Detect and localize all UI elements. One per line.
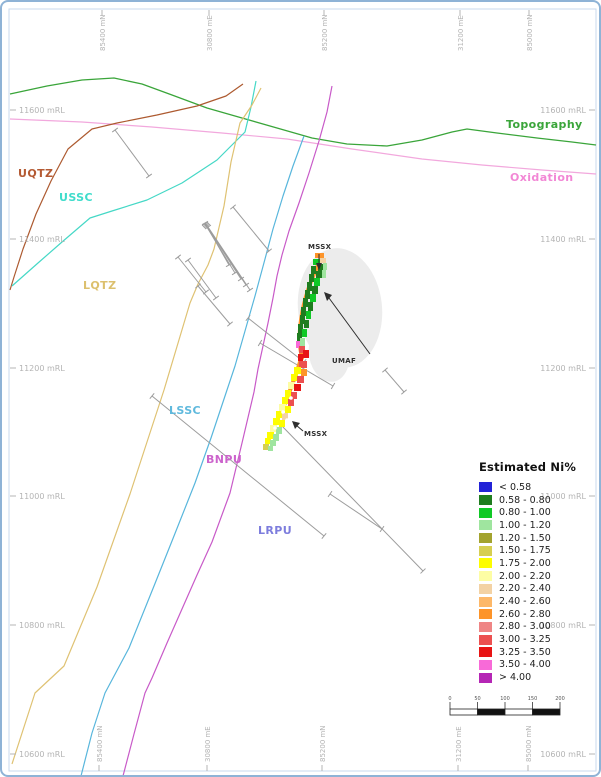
zone-label-bnpu: BNPU [206,453,242,466]
block-model-cell [312,286,318,294]
legend-label: 2.40 - 2.60 [499,596,551,607]
legend-row: 3.50 - 4.00 [479,659,576,672]
block-model-cell [306,311,311,319]
legend-label: 3.50 - 4.00 [499,659,551,670]
block-model-cell [294,367,301,374]
zone-label-uqtz: UQTZ [18,167,53,180]
legend-swatch [479,647,492,657]
block-model-cell [279,404,286,411]
legend-swatch [479,571,492,581]
pierce-point [273,426,277,430]
legend-row: 3.00 - 3.25 [479,633,576,646]
zone-label-lssc: LSSC [169,404,201,417]
legend-row: 0.80 - 1.00 [479,506,576,519]
legend-swatch [479,533,492,543]
drillhole-end-tick [247,288,253,292]
top-axis-label: 85200 mN [321,14,329,51]
legend-label: 1.20 - 1.50 [499,533,551,544]
drillhole-collar-tick [112,128,118,132]
scale-bar-tick-label: 100 [500,696,510,702]
legend-label: 0.58 - 0.80 [499,495,551,506]
legend-row: 2.60 - 2.80 [479,608,576,621]
block-model-cell [316,271,322,278]
legend-row: 1.00 - 1.20 [479,519,576,532]
bottom-axis-label: 85000 mN [525,725,533,762]
legend-row: 1.50 - 1.75 [479,544,576,557]
left-axis-label: 11600 mRL [19,106,65,115]
drillhole-trace [188,260,216,298]
legend-row: 1.75 - 2.00 [479,557,576,570]
block-model-cell [291,374,298,381]
zone-label-lrpu: LRPU [258,524,292,537]
drillhole-trace [152,396,324,536]
block-model-cell [285,406,291,413]
zone-label-ussc: USSC [59,191,93,204]
drillhole-collar-tick [328,491,332,497]
drillhole-trace [385,370,404,392]
drillhole-collar-tick [258,340,262,346]
drillhole-collar-tick [175,255,180,259]
legend-label: 0.80 - 1.00 [499,507,551,518]
block-model-cell [276,427,282,434]
legend-swatch [479,635,492,645]
drillhole-trace [233,207,269,251]
bottom-axis-label: 31200 mE [455,726,463,762]
block-model-cell [305,290,310,299]
block-model-cell [299,361,307,368]
drillhole-end-tick [146,174,152,178]
legend-swatch [479,546,492,556]
left-axis-label: 10600 mRL [19,750,65,759]
bottom-axis-label: 85200 mN [319,725,327,762]
legend-swatch [479,622,492,632]
legend-row: 2.20 - 2.40 [479,583,576,596]
zone-label-oxidation: Oxidation [510,171,574,184]
legend-row: < 0.58 [479,481,576,494]
cross-section-figure: 85400 mN30800 mE85200 mN31200 mE85000 mN… [0,0,601,777]
right-axis-label: 11400 mRL [540,235,586,244]
drillhole-collar-tick [185,258,191,262]
zone-label-topography: Topography [506,118,583,131]
drillhole-end-tick [331,383,335,389]
drillhole-trace [198,286,230,324]
pierce-point [281,410,285,414]
legend-swatch [479,660,492,670]
legend-swatch [479,508,492,518]
left-axis-label: 10800 mRL [19,621,65,630]
legend-row: > 4.00 [479,671,576,684]
legend-row: 1.20 - 1.50 [479,532,576,545]
scale-bar-segment [450,709,478,715]
drillhole-trace [115,130,149,176]
legend-row: 3.25 - 3.50 [479,646,576,659]
legend-rows: < 0.580.58 - 0.800.80 - 1.001.00 - 1.201… [479,481,576,684]
block-model-cell [320,258,326,263]
legend-row: 2.80 - 3.00 [479,621,576,634]
annotation-mssx-2: MSSX [304,430,327,438]
legend-swatch [479,558,492,568]
legend-swatch [479,584,492,594]
right-axis-label: 11600 mRL [540,106,586,115]
block-model-cell [298,354,303,361]
top-axis-label: 85000 mN [526,14,534,51]
legend-label: 2.00 - 2.20 [499,571,551,582]
legend-label: 3.25 - 3.50 [499,647,551,658]
scale-bar-tick-label: 50 [474,696,480,702]
annotation-umaf-1: UMAF [332,357,356,365]
legend-row: 0.58 - 0.80 [479,494,576,507]
block-model-cell [300,338,305,346]
topography-line [10,78,596,146]
drillhole-trace [178,257,206,292]
scale-bar-segment [533,709,561,715]
legend-swatch [479,520,492,530]
block-model-cell [270,440,276,446]
top-axis-label: 85400 mN [99,14,107,51]
block-model-cell [308,302,313,311]
scale-bar-segment [505,709,533,715]
scale-bar-tick-label: 0 [448,696,451,702]
scale-bar-tick-label: 150 [528,696,538,702]
block-model-cell [268,446,273,451]
block-model-cell [314,278,320,286]
drillhole-trace [282,426,423,571]
annotation-mssx-0: MSSX [308,243,331,251]
block-model-cell [323,263,327,270]
bnpu-boundary-line [123,86,332,776]
drillhole-trace [248,318,304,362]
block-model-cell [301,369,307,376]
right-axis-label: 10600 mRL [540,750,586,759]
lqtz-boundary-line [12,88,261,764]
drillhole-trace [330,494,382,529]
legend-swatch [479,597,492,607]
block-model-cell [303,298,308,307]
block-model-cell [322,270,326,278]
legend-title: Estimated Ni% [479,460,576,474]
lssc-boundary-line [81,136,304,776]
left-axis-label: 11000 mRL [19,492,65,501]
block-model-cell [273,418,280,425]
legend-label: 2.80 - 3.00 [499,621,551,632]
block-model-cell [309,274,314,282]
block-model-cell [303,350,309,358]
block-model-cell [294,384,301,391]
block-model-cell [310,294,316,302]
block-model-cell [273,434,279,441]
pierce-point [289,396,293,400]
drillhole-trace [205,224,235,273]
block-model-cell [311,266,316,274]
block-model-cell [267,432,274,439]
left-axis-label: 11200 mRL [19,364,65,373]
drillhole-trace [208,227,250,290]
legend-label: 1.00 - 1.20 [499,520,551,531]
pierce-point [285,418,289,422]
block-model-cell [288,382,295,389]
legend-label: 3.00 - 3.25 [499,634,551,645]
legend-label: < 0.58 [499,482,531,493]
legend-row: 2.00 - 2.20 [479,570,576,583]
block-model-cell [288,399,294,406]
legend-swatch [479,495,492,505]
legend-label: > 4.00 [499,672,531,683]
left-axis-label: 11400 mRL [19,235,65,244]
block-model-cell [307,282,312,291]
block-model-cell [297,376,304,383]
block-model-cell [302,329,307,337]
scale-bar-tick-label: 200 [555,696,565,702]
block-model-cell [279,420,285,427]
legend-swatch [479,673,492,683]
legend-label: 2.20 - 2.40 [499,583,551,594]
legend-swatch [479,609,492,619]
top-axis-label: 31200 mE [457,15,465,51]
zone-label-lqtz: LQTZ [83,279,116,292]
top-axis-label: 30800 mE [206,15,214,51]
block-model-cell [285,390,291,397]
bottom-axis-label: 30800 mE [204,726,212,762]
block-model-cell [304,320,309,328]
right-axis-label: 11200 mRL [540,364,586,373]
bottom-axis-label: 85400 mN [96,725,104,762]
block-model-cell [282,397,289,404]
scale-bar-segment [478,709,506,715]
ni-legend: Estimated Ni% < 0.580.58 - 0.800.80 - 1.… [479,460,576,684]
legend-label: 1.75 - 2.00 [499,558,551,569]
block-model-cell [301,307,306,316]
legend-swatch [479,482,492,492]
legend-label: 2.60 - 2.80 [499,609,551,620]
legend-label: 1.50 - 1.75 [499,545,551,556]
drillhole-end-tick [213,296,219,300]
legend-row: 2.40 - 2.60 [479,595,576,608]
